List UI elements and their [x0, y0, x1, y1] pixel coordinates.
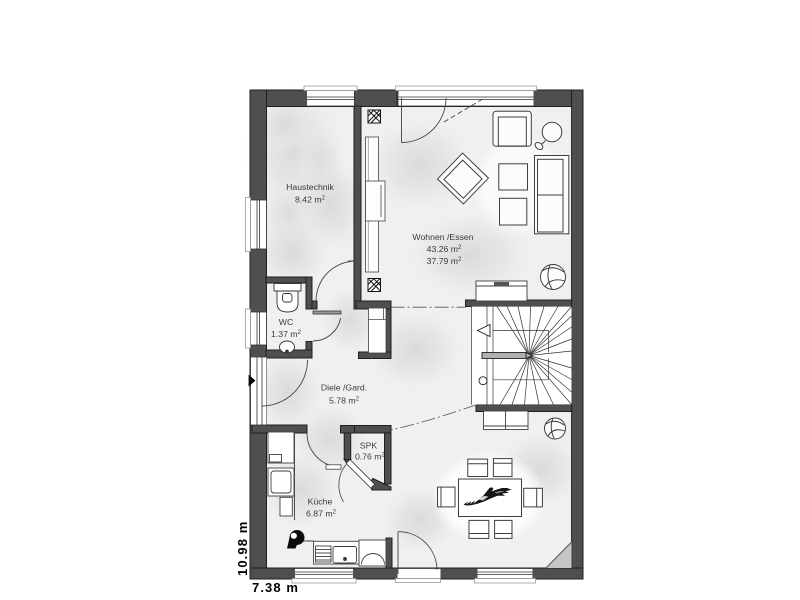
svg-text:Küche: Küche: [308, 497, 333, 507]
svg-text:1.37 m2: 1.37 m2: [271, 329, 302, 339]
svg-text:WC: WC: [279, 317, 293, 327]
svg-text:7.38 m: 7.38 m: [252, 580, 299, 595]
svg-text:Haustechnik: Haustechnik: [286, 182, 334, 192]
svg-text:0.76 m2: 0.76 m2: [355, 451, 386, 461]
svg-text:43.26 m2: 43.26 m2: [427, 244, 462, 254]
svg-text:Wohnen /Essen: Wohnen /Essen: [412, 232, 473, 242]
svg-text:37.79 m2: 37.79 m2: [427, 256, 462, 266]
svg-text:5.78 m2: 5.78 m2: [329, 396, 360, 406]
svg-text:8.42 m2: 8.42 m2: [295, 195, 326, 205]
svg-text:SPK: SPK: [360, 441, 378, 451]
svg-text:10.98 m: 10.98 m: [235, 521, 250, 576]
svg-text:Diele /Gard.: Diele /Gard.: [321, 383, 367, 393]
svg-text:6.87 m2: 6.87 m2: [306, 509, 337, 519]
